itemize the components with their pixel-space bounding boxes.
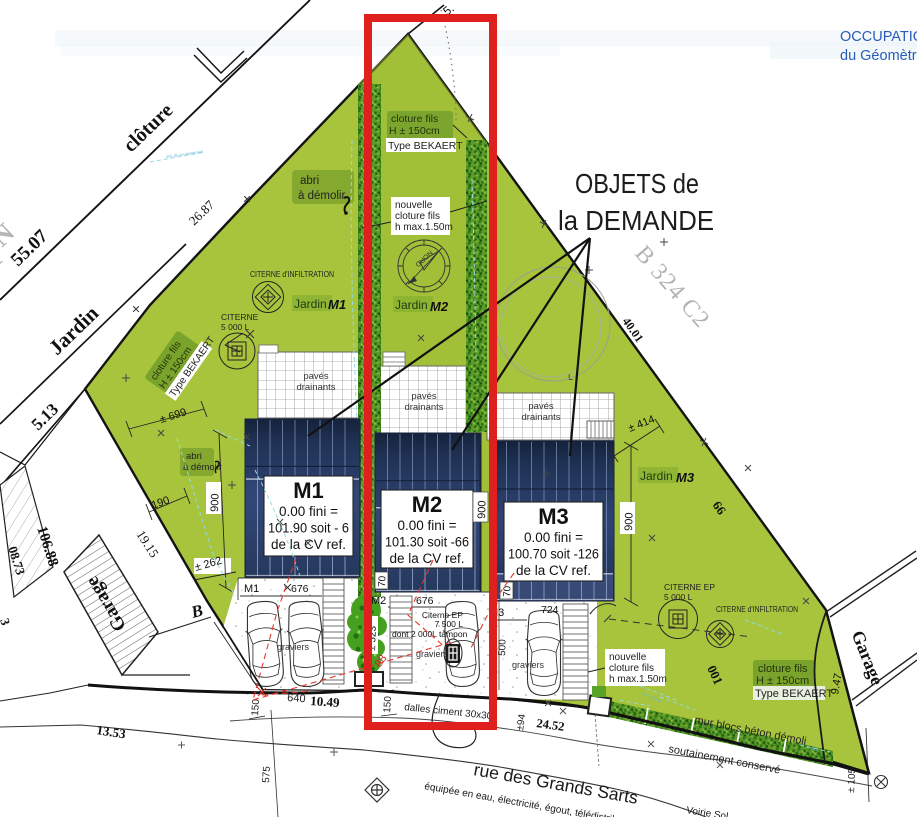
svg-text:M1: M1 [328, 297, 346, 312]
svg-text:Jardin: Jardin [294, 297, 327, 311]
svg-text:Type BEKAERT: Type BEKAERT [388, 140, 463, 152]
svg-text:la DEMANDE: la DEMANDE [558, 205, 714, 236]
svg-text:OCCUPATIO: OCCUPATIO [840, 29, 917, 45]
svg-text:Jardin: Jardin [640, 469, 673, 483]
svg-text:10.49: 10.49 [310, 693, 341, 710]
svg-text:900: 900 [623, 512, 636, 531]
svg-text:graviers: graviers [512, 660, 545, 670]
svg-text:cloture fils: cloture fils [391, 113, 438, 125]
svg-text:900: 900 [476, 500, 489, 519]
svg-text:70: 70 [377, 575, 388, 587]
svg-text:cloture fils: cloture fils [758, 663, 808, 675]
svg-text:575: 575 [261, 765, 273, 783]
svg-text:676: 676 [291, 583, 309, 595]
svg-text:dont 2 000L tampon: dont 2 000L tampon [392, 629, 468, 639]
svg-text:900: 900 [209, 493, 222, 512]
svg-text:7 500 L: 7 500 L [435, 619, 464, 629]
svg-text:de la CV ref.: de la CV ref. [271, 537, 346, 552]
svg-text:101.30 soit -66: 101.30 soit -66 [385, 535, 469, 550]
svg-text:pavés: pavés [303, 371, 329, 382]
svg-text:0.00 fini =: 0.00 fini = [279, 504, 338, 519]
svg-text:abri: abri [186, 451, 202, 462]
svg-text:graviers: graviers [277, 642, 310, 652]
svg-text:CITERNE d'INFILTRATION: CITERNE d'INFILTRATION [716, 604, 798, 614]
svg-text:676: 676 [416, 595, 434, 607]
svg-text:± 105: ± 105 [846, 767, 858, 793]
svg-text:cloture fils: cloture fils [609, 663, 654, 674]
svg-text:h max.1.50m: h max.1.50m [609, 674, 667, 685]
svg-text:150: 150 [250, 698, 262, 716]
svg-text:CITERNE: CITERNE [221, 312, 259, 322]
svg-text:du Géomètr: du Géomètr [840, 48, 917, 64]
svg-text:100.70 soit -126: 100.70 soit -126 [508, 547, 599, 562]
svg-text:Jardin: Jardin [395, 298, 428, 312]
svg-text:Type BEKAERT: Type BEKAERT [755, 688, 833, 700]
svg-text:cloture fils: cloture fils [395, 211, 440, 222]
svg-text:CITERNE EP: CITERNE EP [664, 582, 715, 592]
svg-text:5 000 L: 5 000 L [221, 322, 250, 332]
svg-text:de la CV ref.: de la CV ref. [389, 551, 464, 566]
svg-text:OBJETS de: OBJETS de [575, 168, 699, 199]
svg-text:500: 500 [497, 639, 509, 656]
svg-text:M3: M3 [538, 504, 569, 529]
svg-text:±94: ±94 [515, 713, 528, 731]
svg-text:0.00 fini =: 0.00 fini = [524, 530, 583, 545]
svg-text:M1: M1 [293, 478, 324, 503]
svg-text:pavés: pavés [528, 401, 554, 412]
svg-text:M2: M2 [412, 492, 443, 517]
svg-text:M1: M1 [244, 583, 259, 595]
svg-text:M2: M2 [430, 299, 449, 314]
svg-text:CITERNE d'INFILTRATION: CITERNE d'INFILTRATION [250, 269, 334, 279]
svg-text:M3: M3 [676, 470, 695, 485]
svg-text:H ± 150cm: H ± 150cm [389, 125, 440, 137]
svg-text:h max.1.50m: h max.1.50m [395, 222, 453, 233]
svg-text:5 000 L: 5 000 L [664, 592, 693, 602]
svg-text:M2: M2 [371, 595, 386, 607]
svg-text:nouvelle: nouvelle [609, 652, 647, 663]
svg-text:150: 150 [382, 695, 394, 713]
svg-text:724: 724 [541, 604, 559, 616]
svg-text:H ± 150cm: H ± 150cm [756, 675, 809, 687]
svg-text:pavés: pavés [411, 391, 437, 402]
svg-text:à démolir: à démolir [298, 190, 345, 202]
svg-text:de la CV ref.: de la CV ref. [516, 563, 591, 578]
svg-text:640: 640 [287, 692, 306, 705]
svg-text:drainants: drainants [521, 412, 560, 423]
svg-text:drainants: drainants [296, 382, 335, 393]
svg-text:drainants: drainants [404, 402, 443, 413]
svg-text:0.00 fini =: 0.00 fini = [398, 518, 457, 533]
svg-text:abri: abri [300, 175, 319, 187]
svg-text:nouvelle: nouvelle [395, 200, 433, 211]
svg-text:70: 70 [502, 585, 513, 597]
